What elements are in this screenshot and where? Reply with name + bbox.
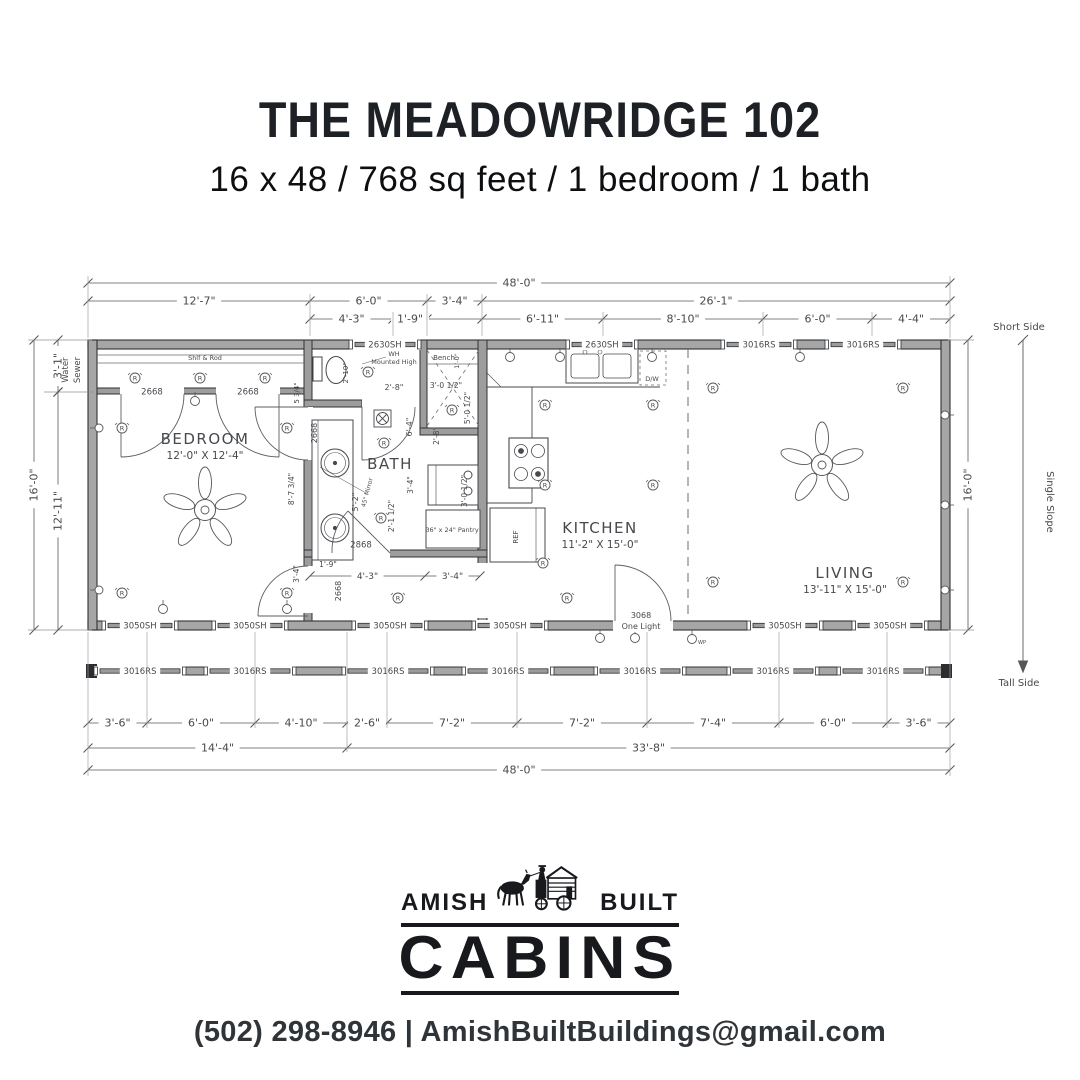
light-symbol (556, 348, 565, 362)
wall-outlet-symbol (941, 501, 954, 509)
window-label: 3016RS (757, 667, 790, 677)
dim-wd-w: 3'-4" (406, 476, 415, 494)
horse-and-wagon-icon (494, 856, 594, 920)
receptacle-letter: R (285, 425, 290, 433)
dimension-row: 48'-0" (84, 763, 955, 776)
receptacle-symbol: R (538, 400, 552, 410)
receptacle-symbol: R (896, 577, 910, 587)
dimension-label: 3'-4" (441, 295, 467, 308)
window-label: 3016RS (743, 341, 776, 351)
window-label: 3016RS (124, 667, 157, 677)
receptacle-letter: R (396, 595, 401, 603)
dimension-label: 3'-6" (104, 717, 130, 730)
page-title: THE MEADOWRIDGE 102 (22, 90, 1059, 148)
exhaust-fan-icon (374, 410, 391, 427)
dim-hall-clr: 1'-9" (319, 560, 337, 569)
logo: AMISH (401, 856, 679, 995)
receptacle-symbol: R (280, 423, 294, 433)
dim-door-clr: 2'-1 1/2" (387, 500, 396, 532)
window: 3016RS (825, 339, 901, 351)
dimension-row: 4'-3"1'-9"6'-11"8'-10"6'-0"4'-4" (306, 312, 955, 325)
receptacle-letter: R (263, 375, 268, 383)
receptacle-letter: R (565, 595, 570, 603)
dim-wall-a3: 3'-4" (292, 565, 301, 583)
dimension-row: 14'-4"33'-8" (84, 741, 955, 754)
note-closet-shelf: Shlf & Rod (188, 354, 222, 362)
dimension-label: 48'-0" (502, 764, 535, 777)
window-label: 3050SH (233, 622, 266, 632)
receptacle-letter: R (901, 579, 906, 587)
dimension-label: 6'-11" (526, 313, 559, 326)
note-pantry: 36" x 24" Pantry (425, 526, 479, 534)
room-label-bedroom: BEDROOM (161, 430, 250, 448)
dim-wall-a2: 8'-7 3/4" (287, 473, 296, 505)
door-label-main-b: One Light (622, 622, 661, 631)
window-label: 3016RS (867, 667, 900, 677)
receptacle-letter: R (901, 385, 906, 393)
receptacle-symbol: R (706, 577, 720, 587)
room-label-bath: BATH (367, 455, 413, 473)
kitchen-sink (566, 349, 638, 383)
receptacle-symbol: R (445, 405, 459, 415)
door-label-main-a: 3068 (631, 611, 651, 620)
contact-line: (502) 298-8946 | AmishBuiltBuildings@gma… (0, 1016, 1080, 1049)
logo-word-built: BUILT (600, 889, 679, 920)
receptacle-symbol: R (377, 438, 391, 448)
receptacle-symbol: R (258, 373, 272, 383)
dimension-label: 16'-0" (28, 468, 41, 501)
light-symbol (596, 629, 605, 643)
dimension-label: 2'-6" (354, 717, 380, 730)
side-label-slope: Single Slope (1044, 471, 1055, 533)
window-label: 3050SH (768, 622, 801, 632)
dimension-label: 12'-7" (182, 295, 215, 308)
window-label: 3050SH (123, 622, 156, 632)
receptacle-letter: R (133, 375, 138, 383)
window: 3050SH (102, 620, 178, 632)
window: 3016RS (727, 666, 819, 678)
utility-label-sewer: Sewer (73, 356, 83, 383)
receptacle-symbol: R (193, 373, 207, 383)
dimension-label: 7'-2" (569, 717, 595, 730)
light-symbol (283, 600, 292, 614)
logo-top-row: AMISH (401, 856, 679, 920)
window: 3016RS (342, 666, 434, 678)
light-symbol (796, 348, 805, 362)
receptacle-symbol: R (361, 367, 375, 377)
receptacle-symbol: R (115, 423, 129, 433)
note-mirror: 45" Mirror (360, 477, 375, 508)
logo-word-amish: AMISH (401, 889, 488, 920)
window: 2630SH (566, 339, 638, 351)
window-label: 3016RS (234, 667, 267, 677)
receptacle-symbol: R (280, 588, 294, 598)
room-size-kitchen: 11'-2" X 15'-0" (562, 539, 639, 551)
receptacle-letter: R (366, 369, 371, 377)
side-label-tall: Tall Side (998, 678, 1040, 689)
washer-dryer (428, 465, 478, 505)
wall-outlet-symbol (941, 586, 954, 594)
room-size-living: 13'-11" X 15'-0" (803, 584, 887, 596)
receptacle-letter: R (541, 560, 546, 568)
receptacle-letter: R (120, 590, 125, 598)
window: 3016RS (594, 666, 686, 678)
receptacle-letter: R (711, 385, 716, 393)
dimension-label: 7'-4" (700, 717, 726, 730)
window: 3050SH (212, 620, 288, 632)
dimension-label: 3'-4" (442, 572, 463, 582)
dim-wd-d: 3'-0 1/2" (460, 475, 469, 507)
room-size-bedroom: 12'-0" X 12'-4" (167, 450, 244, 462)
dimension-label: 12'-11" (52, 491, 65, 531)
receptacle-symbol: R (646, 400, 660, 410)
floor-plan-svg: 2630SH2630SH3016RS3016RS3050SH3050SH3050… (0, 260, 1080, 795)
window: 2630SH (349, 339, 421, 351)
receptacle-letter: R (198, 375, 203, 383)
receptacle-symbol: R (646, 480, 660, 490)
light-symbol (506, 348, 515, 362)
window: 3016RS (721, 339, 797, 351)
dim-shower-h: 5'-0 1/2" (463, 392, 472, 424)
door-label-closet-a: 2668 (141, 388, 163, 398)
window: 3016RS (837, 666, 929, 678)
dimension-label: 16'-0" (962, 468, 975, 501)
ceiling-fan-icon (779, 422, 865, 504)
flyer-page: THE MEADOWRIDGE 102 16 x 48 / 768 sq fee… (0, 0, 1080, 1080)
dim-shower-w: 3'-0 1/2" (430, 381, 462, 390)
receptacle-symbol: R (115, 588, 129, 598)
window: 3016RS (204, 666, 296, 678)
dimension-vertical: 12'-11" (52, 388, 65, 635)
dimension-label: 4'-3" (357, 572, 378, 582)
receptacle-letter: R (651, 482, 656, 490)
wall-outlet-symbol (941, 411, 954, 419)
window-label: 2630SH (585, 341, 618, 351)
dimension-label: 4'-3" (338, 313, 364, 326)
dimension-label: 6'-0" (355, 295, 381, 308)
window-label: 3016RS (847, 341, 880, 351)
door-label-bath-hall1: 2668 (310, 423, 319, 443)
window: 3050SH (852, 620, 928, 632)
receptacle-letter: R (651, 402, 656, 410)
receptacle-symbol: R (391, 593, 405, 603)
vanity (312, 420, 366, 560)
dimension-label: 14'-4" (201, 742, 234, 755)
window-label: 3016RS (372, 667, 405, 677)
utility-label-water: Water (61, 357, 71, 383)
window: 3016RS (94, 666, 186, 678)
receptacle-letter: R (379, 515, 384, 523)
note-wh-1: WH (388, 350, 399, 358)
dimension-label: 1'-9" (397, 313, 423, 326)
dim-hall-h: 6'-4" (405, 418, 414, 437)
dim-toilet: 2'-10" (342, 362, 350, 383)
dimension-label: 6'-0" (804, 313, 830, 326)
window: 3050SH (352, 620, 428, 632)
dimension-row: 12'-7"6'-0"3'-4"26'-1" (84, 294, 955, 307)
dimension-row: 4'-3"3'-4" (306, 570, 485, 581)
note-refrigerator: REF (512, 530, 520, 543)
light-symbol (648, 348, 657, 362)
dimension-label: 6'-0" (188, 717, 214, 730)
receptacle-letter: R (711, 579, 716, 587)
receptacle-symbol: R (374, 513, 388, 523)
door-label-closet-b: 2668 (237, 388, 259, 398)
receptacle-letter: R (543, 402, 548, 410)
dimension-row: 3'-6"6'-0"4'-10"2'-6"7'-2"7'-2"7'-4"6'-0… (84, 716, 955, 729)
dimension-label: 7'-2" (439, 717, 465, 730)
roof-slope-arrow (1018, 335, 1028, 672)
window-label: 3050SH (873, 622, 906, 632)
dim-shower-d: 2'-8" (432, 427, 441, 445)
note-dishwasher: D/W (645, 375, 659, 383)
receptacle-letter: R (382, 440, 387, 448)
room-label-kitchen: KITCHEN (562, 519, 638, 537)
ceiling-fan-icon (162, 467, 248, 549)
receptacle-symbol: R (706, 383, 720, 393)
dim-bench-depth: 1'-0" (453, 353, 461, 368)
dimension-label: 4'-4" (898, 313, 924, 326)
receptacle-letter: R (543, 482, 548, 490)
receptacle-symbol: R (128, 373, 142, 383)
window: 3050SH (747, 620, 823, 632)
logo-word-cabins: CABINS (399, 928, 682, 988)
window-label: 3050SH (493, 622, 526, 632)
dimension-row: 48'-0" (84, 276, 955, 289)
dimension-label: 6'-0" (820, 717, 846, 730)
dim-hall-w: 2'-8" (385, 383, 404, 392)
note-wh-2: Mounted High (371, 358, 417, 366)
receptacle-symbol: R (896, 383, 910, 393)
window: 3016RS (462, 666, 554, 678)
note-bench: Bench (433, 354, 455, 362)
side-label-short: Short Side (993, 322, 1045, 333)
plan-subtitle: 16 x 48 / 768 sq feet / 1 bedroom / 1 ba… (0, 160, 1080, 200)
window-label: 3016RS (624, 667, 657, 677)
receptacle-letter: R (285, 590, 290, 598)
door-label-bath-hall2: 2668 (334, 581, 343, 601)
window: 3050SH (472, 620, 548, 632)
door-label-bath: 2868 (350, 541, 372, 551)
logo-rule-bottom (401, 991, 679, 995)
dim-vanity: 5'-2" (351, 493, 360, 512)
dim-wall-a1: 5 3/4" (293, 382, 301, 403)
dimension-label: 8'-10" (666, 313, 699, 326)
receptacle-symbol: R (560, 593, 574, 603)
receptacle-letter: R (120, 425, 125, 433)
light-symbol (688, 630, 697, 644)
dimension-label: 48'-0" (502, 277, 535, 290)
dimension-label: 33'-8" (632, 742, 665, 755)
window-label: 3050SH (373, 622, 406, 632)
dimension-label: 3'-6" (905, 717, 931, 730)
note-wp: WP (698, 640, 706, 646)
room-label-living: LIVING (815, 564, 874, 582)
dimension-label: 26'-1" (699, 295, 732, 308)
window-label: 3016RS (492, 667, 525, 677)
light-symbol (159, 600, 168, 614)
dimension-label: 4'-10" (284, 717, 317, 730)
receptacle-letter: R (450, 407, 455, 415)
window-label: 2630SH (368, 341, 401, 351)
